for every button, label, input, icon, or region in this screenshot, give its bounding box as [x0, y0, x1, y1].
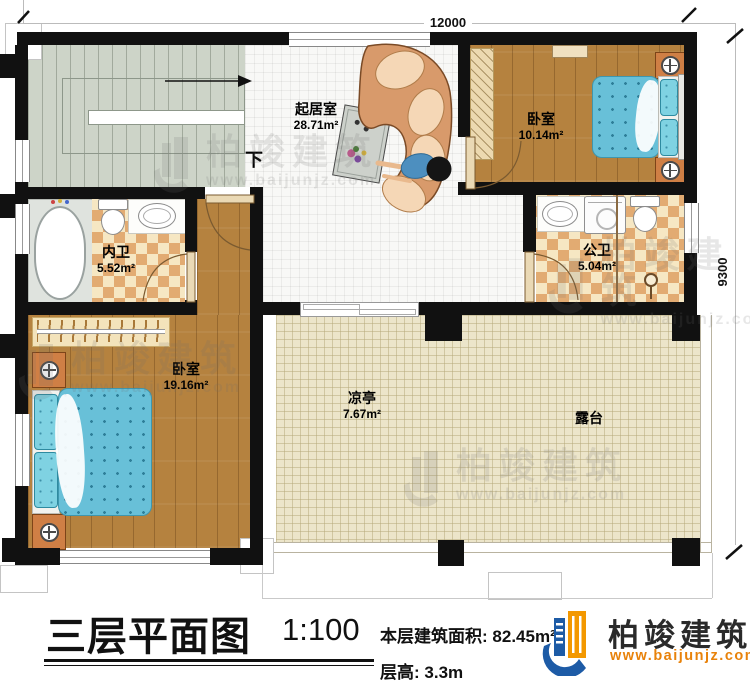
- wall-segment: [458, 45, 470, 137]
- flower-icon: [347, 149, 356, 158]
- wall-pier: [0, 334, 15, 358]
- terrace-floor: [276, 315, 700, 542]
- room-area: 10.14m²: [519, 128, 564, 144]
- room-label-living: 起居室 28.71m²: [294, 100, 339, 134]
- floor-plan-canvas: 起居室 28.71m² 卧室 10.14m² 内卫 5.52m² 公卫 5.04…: [0, 0, 750, 681]
- table-item: [354, 119, 360, 125]
- lamp-icon: [661, 56, 680, 75]
- wall-segment: [17, 32, 289, 45]
- pillow: [660, 79, 678, 116]
- window: [684, 203, 699, 253]
- eave-line: [262, 598, 712, 599]
- wall-segment: [15, 548, 60, 565]
- company-logo-icon: [538, 606, 604, 676]
- sliding-door: [300, 302, 419, 317]
- extension-line: [23, 0, 24, 23]
- room-area: 19.16m²: [164, 378, 209, 394]
- door-leaf: [525, 252, 534, 302]
- dimension-tick: [682, 8, 696, 22]
- tub-tap-cold: [65, 200, 69, 204]
- corridor-floor: [197, 199, 250, 315]
- wall-segment: [430, 32, 697, 45]
- wall-segment: [15, 187, 205, 199]
- wall-segment: [523, 195, 536, 252]
- wall-gap-strip: [263, 315, 277, 542]
- lamp-icon: [40, 523, 59, 542]
- door-leaf: [187, 252, 195, 302]
- room-name: 卧室: [164, 360, 209, 378]
- wall-segment: [15, 254, 28, 414]
- flower-icon: [361, 150, 367, 156]
- room-name: 内卫: [97, 243, 135, 261]
- nightstand: [32, 514, 66, 550]
- bathtub: [34, 206, 86, 300]
- parapet-line: [711, 315, 712, 553]
- public-bath-divider: [616, 195, 618, 302]
- flower-icon: [354, 155, 362, 163]
- nightstand: [32, 352, 66, 388]
- room-label-public-bath: 公卫 5.04m²: [578, 241, 616, 275]
- parapet: [700, 315, 711, 553]
- wall-pier: [0, 54, 15, 78]
- room-area: 7.67m²: [343, 407, 381, 423]
- tub-tap-hot: [51, 200, 55, 204]
- title-underline: [44, 665, 374, 666]
- sliding-door-panel: [359, 309, 416, 315]
- pillow: [660, 119, 678, 156]
- bedroom1-console-table: [552, 45, 588, 58]
- dimension-line-top: [23, 23, 735, 24]
- parapet-line: [263, 552, 711, 553]
- window: [289, 32, 430, 47]
- stair-handrail: [88, 110, 245, 125]
- wall-pier: [0, 194, 15, 218]
- pillow: [34, 452, 58, 508]
- washing-machine: [584, 196, 626, 234]
- room-label-bedroom1: 卧室 10.14m²: [519, 110, 564, 144]
- eave-line: [262, 565, 263, 598]
- sliding-door-panel: [303, 304, 360, 310]
- lamp-icon: [661, 161, 680, 180]
- room-label-ensuite: 内卫 5.52m²: [97, 243, 135, 277]
- table-item: [363, 126, 369, 132]
- terrace-column: [672, 538, 700, 566]
- room-label-pavilion: 凉亭 7.67m²: [343, 389, 381, 423]
- parapet-line: [700, 315, 701, 553]
- hall-floor: [263, 187, 523, 302]
- parapet-line: [263, 542, 711, 543]
- room-name: 公卫: [578, 241, 616, 259]
- window: [15, 414, 30, 486]
- floor-height-label: 层高:: [380, 663, 420, 681]
- tub-tap-mid: [58, 199, 62, 203]
- dimension-tick: [726, 545, 742, 559]
- terrace-column: [672, 315, 700, 341]
- floor-height-info: 层高: 3.3m: [380, 658, 463, 681]
- room-name: 卧室: [519, 110, 564, 128]
- nightstand: [655, 157, 685, 184]
- dimension-top-label: 12000: [424, 14, 472, 31]
- eave-line: [712, 553, 713, 598]
- room-name: 露台: [575, 409, 603, 427]
- floor-area-info: 本层建筑面积: 82.45m²: [380, 622, 556, 647]
- company-website: www.baijunjz.com: [610, 648, 750, 664]
- wall-segment: [250, 187, 263, 548]
- room-name: 凉亭: [343, 389, 381, 407]
- wall-segment: [263, 302, 300, 315]
- eave-outline: [488, 572, 562, 600]
- closet-rail: [37, 329, 165, 334]
- terrace-column: [438, 540, 464, 566]
- wall-pier: [2, 538, 15, 562]
- lamp-icon: [40, 361, 59, 380]
- wall-segment: [458, 182, 697, 195]
- dimension-right-label: 9300: [707, 252, 737, 292]
- wall-segment: [15, 45, 28, 140]
- window: [60, 550, 210, 564]
- eave-outline: [0, 565, 48, 593]
- plan-scale: 1:100: [282, 612, 360, 648]
- floor-area-label: 本层建筑面积:: [380, 627, 488, 646]
- flower-icon: [353, 146, 360, 153]
- bedroom2-closet: [32, 317, 170, 347]
- wall-segment: [417, 302, 697, 315]
- public-sink: [542, 201, 578, 227]
- wall-segment: [210, 548, 263, 565]
- terrace-column: [425, 315, 462, 341]
- room-area: 5.52m²: [97, 261, 135, 277]
- title-underline: [44, 659, 374, 662]
- stairs-down-label: 下: [245, 146, 263, 172]
- bedroom1-wardrobe: [470, 48, 494, 160]
- room-area: 5.04m²: [578, 259, 616, 275]
- room-area: 28.71m²: [294, 118, 339, 134]
- room-label-bedroom2: 卧室 19.16m²: [164, 360, 209, 394]
- room-name: 起居室: [294, 100, 339, 118]
- floor-height-value: 3.3m: [424, 663, 463, 681]
- window: [15, 140, 30, 182]
- ensuite-sink: [138, 203, 176, 229]
- wall-segment: [684, 45, 697, 203]
- room-label-terrace: 露台: [575, 409, 603, 427]
- wall-segment: [185, 199, 197, 252]
- wall-segment: [185, 300, 197, 315]
- plan-title: 三层平面图: [46, 604, 251, 662]
- window: [15, 204, 30, 254]
- wall-segment: [28, 302, 185, 315]
